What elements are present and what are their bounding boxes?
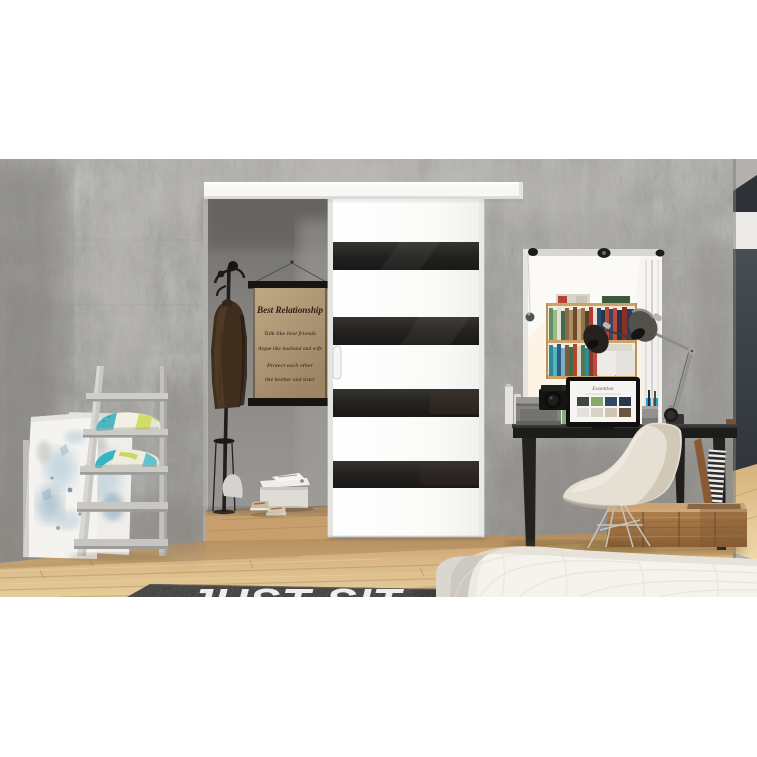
svg-text:Argue like husband and wife: Argue like husband and wife bbox=[257, 345, 323, 352]
svg-text:Best Relationship: Best Relationship bbox=[256, 306, 323, 316]
svg-text:like brother and sister: like brother and sister bbox=[265, 377, 316, 383]
svg-text:Essention: Essention bbox=[591, 386, 614, 392]
svg-text:Talk like best friends: Talk like best friends bbox=[264, 330, 316, 337]
svg-text:Protect each other: Protect each other bbox=[266, 363, 314, 369]
